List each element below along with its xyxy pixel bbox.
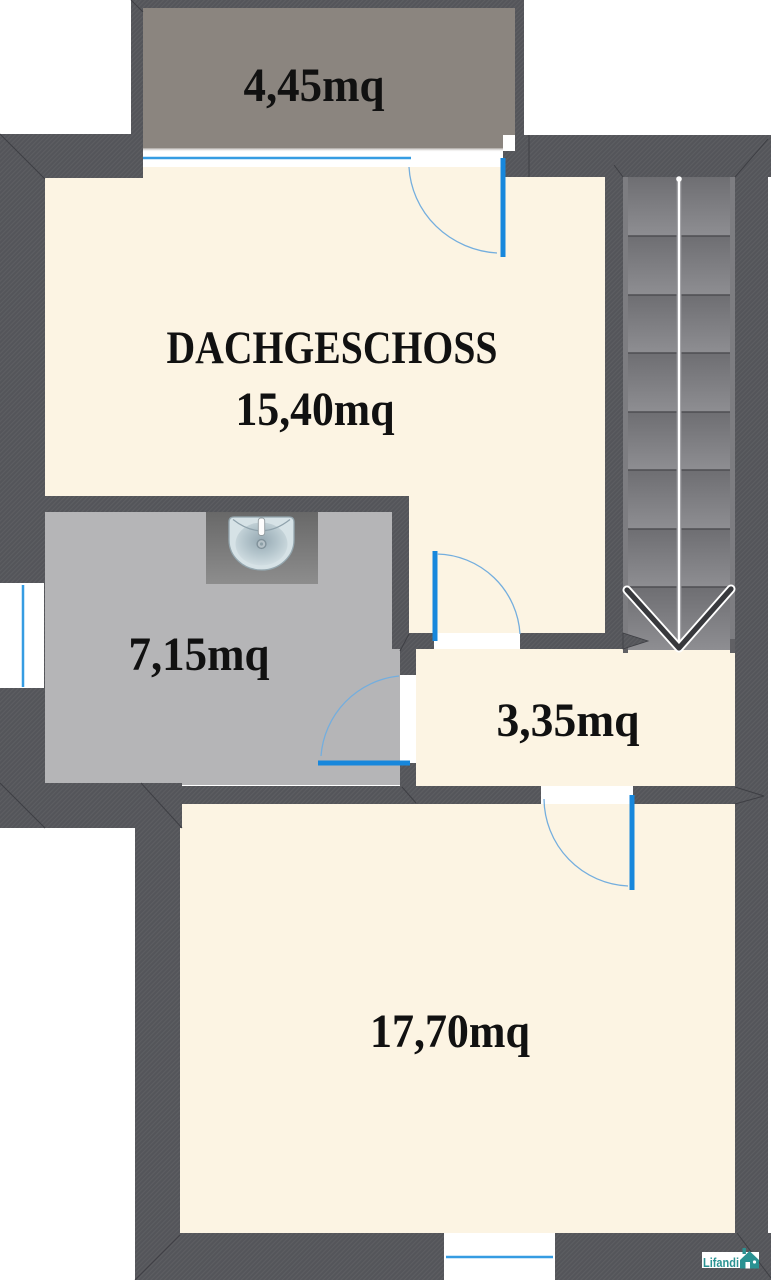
svg-text:4,45mq: 4,45mq [244, 59, 385, 112]
svg-text:Lifandi: Lifandi [703, 1255, 739, 1270]
svg-text:3,35mq: 3,35mq [497, 694, 640, 747]
svg-text:DACHGESCHOSS: DACHGESCHOSS [167, 322, 498, 374]
svg-text:15,40mq: 15,40mq [236, 383, 395, 436]
svg-text:7,15mq: 7,15mq [129, 628, 270, 681]
svg-text:17,70mq: 17,70mq [370, 1005, 530, 1058]
